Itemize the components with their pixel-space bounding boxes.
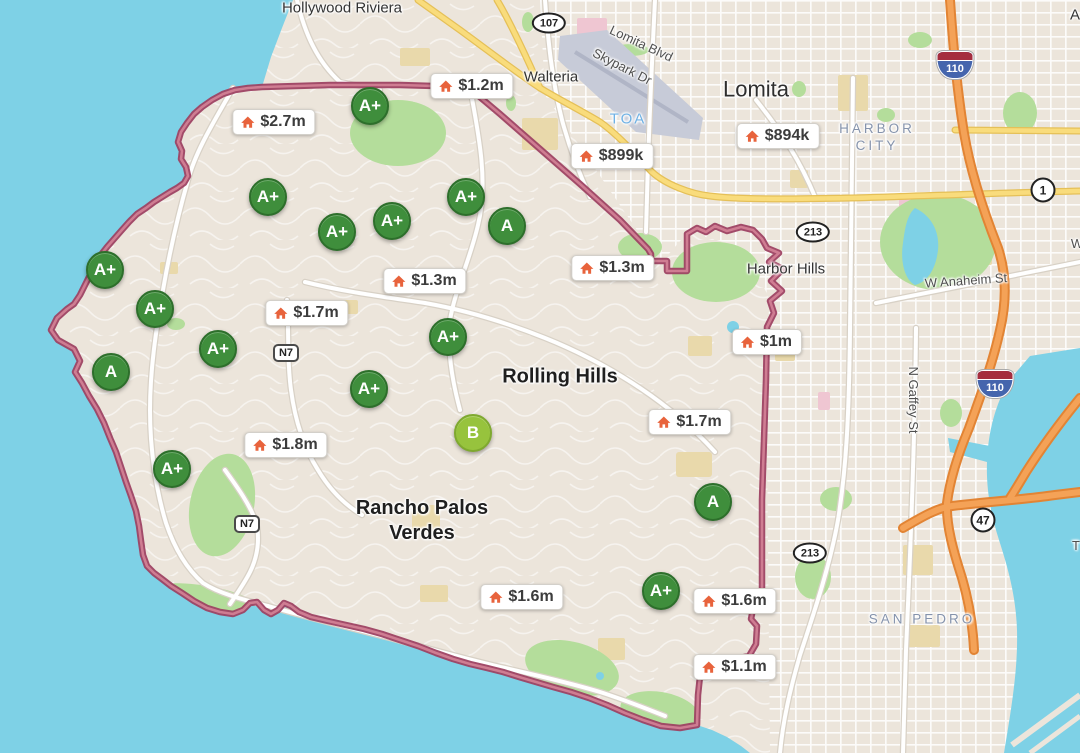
home-price-value: $1.8m: [272, 436, 317, 454]
school-rating-grade: A+: [94, 260, 116, 280]
home-price-marker[interactable]: $1.2m: [430, 73, 513, 99]
home-price-value: $1.6m: [721, 592, 766, 610]
home-price-value: $2.7m: [260, 113, 305, 131]
route-number: 110: [986, 382, 1004, 394]
school-rating-badge[interactable]: A+: [153, 450, 191, 488]
school-rating-badge[interactable]: A+: [447, 178, 485, 216]
school-rating-grade: A+: [650, 581, 672, 601]
school-rating-badge[interactable]: A: [92, 353, 130, 391]
school-rating-badge[interactable]: A+: [86, 251, 124, 289]
home-price-value: $894k: [765, 127, 810, 145]
home-price-marker[interactable]: $894k: [737, 123, 820, 149]
route-number: 213: [804, 226, 822, 238]
school-rating-grade: B: [467, 423, 479, 443]
school-rating-badge[interactable]: A+: [199, 330, 237, 368]
route-shield: 213: [796, 222, 830, 243]
home-price-value: $1.6m: [508, 588, 553, 606]
house-icon: [488, 590, 503, 605]
house-icon: [273, 306, 288, 321]
route-number: N7: [240, 518, 254, 530]
school-rating-grade: A+: [359, 96, 381, 116]
home-price-value: $1m: [760, 333, 792, 351]
home-price-marker[interactable]: $1.7m: [648, 409, 731, 435]
school-rating-badge[interactable]: A+: [429, 318, 467, 356]
school-rating-badge[interactable]: A: [488, 207, 526, 245]
school-rating-grade: A: [105, 362, 117, 382]
route-number: 110: [946, 63, 964, 75]
school-rating-badge[interactable]: B: [454, 414, 492, 452]
route-number: 107: [540, 17, 558, 29]
home-price-marker[interactable]: $1.7m: [265, 300, 348, 326]
basemap-tiles: [0, 0, 1080, 753]
route-number: 213: [801, 547, 819, 559]
home-price-value: $1.7m: [676, 413, 721, 431]
school-rating-grade: A+: [207, 339, 229, 359]
school-rating-badge[interactable]: A+: [373, 202, 411, 240]
home-price-marker[interactable]: $1.8m: [244, 432, 327, 458]
school-rating-grade: A+: [257, 187, 279, 207]
school-rating-badge[interactable]: A+: [318, 213, 356, 251]
route-shield: N7: [234, 515, 260, 533]
home-price-value: $1.3m: [599, 259, 644, 277]
home-price-value: $1.2m: [458, 77, 503, 95]
home-price-marker[interactable]: $1.1m: [693, 654, 776, 680]
school-rating-grade: A: [707, 492, 719, 512]
home-price-value: $1.1m: [721, 658, 766, 676]
route-shield: 1: [1031, 178, 1056, 203]
house-icon: [656, 415, 671, 430]
home-price-value: $1.3m: [411, 272, 456, 290]
school-rating-grade: A+: [455, 187, 477, 207]
route-shield: 107: [532, 13, 566, 34]
school-rating-grade: A+: [381, 211, 403, 231]
home-price-value: $899k: [599, 147, 644, 165]
route-number: N7: [279, 347, 293, 359]
school-rating-grade: A: [501, 216, 513, 236]
school-rating-badge[interactable]: A+: [351, 87, 389, 125]
home-price-marker[interactable]: $1.3m: [571, 255, 654, 281]
school-rating-grade: A+: [161, 459, 183, 479]
school-rating-grade: A+: [358, 379, 380, 399]
school-rating-grade: A+: [326, 222, 348, 242]
home-price-marker[interactable]: $1.6m: [693, 588, 776, 614]
route-number: 1: [1040, 183, 1047, 197]
route-number: 47: [976, 513, 989, 527]
school-rating-badge[interactable]: A: [694, 483, 732, 521]
house-icon: [701, 594, 716, 609]
house-icon: [438, 79, 453, 94]
home-price-marker[interactable]: $899k: [571, 143, 654, 169]
school-rating-badge[interactable]: A+: [350, 370, 388, 408]
house-icon: [579, 149, 594, 164]
home-price-marker[interactable]: $2.7m: [232, 109, 315, 135]
school-rating-badge[interactable]: A+: [249, 178, 287, 216]
house-icon: [391, 274, 406, 289]
house-icon: [252, 438, 267, 453]
house-icon: [579, 261, 594, 276]
house-icon: [745, 129, 760, 144]
house-icon: [701, 660, 716, 675]
route-shield: 213: [793, 543, 827, 564]
route-shield: N7: [273, 344, 299, 362]
home-price-marker[interactable]: $1.3m: [383, 268, 466, 294]
home-price-value: $1.7m: [293, 304, 338, 322]
house-icon: [240, 115, 255, 130]
map-canvas[interactable]: const data = JSON.parse(document.getElem…: [0, 0, 1080, 753]
school-rating-grade: A+: [437, 327, 459, 347]
route-shield: 47: [971, 508, 996, 533]
home-price-marker[interactable]: $1.6m: [480, 584, 563, 610]
school-rating-badge[interactable]: A+: [642, 572, 680, 610]
home-price-marker[interactable]: $1m: [732, 329, 802, 355]
house-icon: [740, 335, 755, 350]
school-rating-grade: A+: [144, 299, 166, 319]
school-rating-badge[interactable]: A+: [136, 290, 174, 328]
